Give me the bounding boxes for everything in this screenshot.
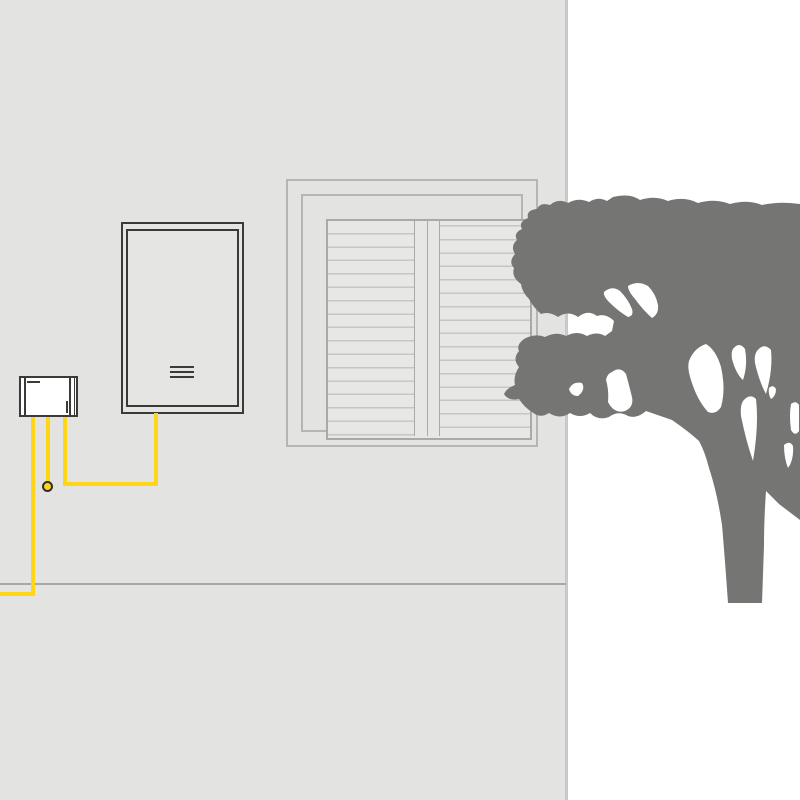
illustration-scene xyxy=(0,0,800,800)
inverter-vent-slot xyxy=(170,371,194,373)
cable-meter-to-ground-vertical xyxy=(31,415,35,596)
shutter-center-line xyxy=(427,221,429,436)
ground-line xyxy=(0,583,566,585)
meter-right-divider xyxy=(74,378,76,415)
meter-indicator-mark xyxy=(66,401,68,413)
cable-meter-to-node xyxy=(46,415,50,482)
shutter-center-stile xyxy=(414,221,440,436)
inverter-vent-slot xyxy=(170,366,194,368)
shutter-left xyxy=(328,221,414,436)
inverter-vent-slot xyxy=(170,376,194,378)
window-frame-inner xyxy=(301,194,523,432)
cable-ground-exit-horizontal xyxy=(0,592,35,596)
cable-terminal-node xyxy=(42,481,53,492)
meter-right-divider xyxy=(69,378,71,415)
cable-inverter-vertical xyxy=(154,413,158,486)
energy-meter-box xyxy=(19,376,78,417)
inverter-front-panel xyxy=(126,229,239,407)
meter-left-divider xyxy=(24,378,26,415)
cable-meter-to-junction xyxy=(63,415,67,486)
tree-silhouette-icon xyxy=(500,190,800,610)
solar-inverter xyxy=(121,222,244,414)
cable-junction-horizontal xyxy=(63,482,158,486)
meter-label-mark xyxy=(27,381,40,383)
